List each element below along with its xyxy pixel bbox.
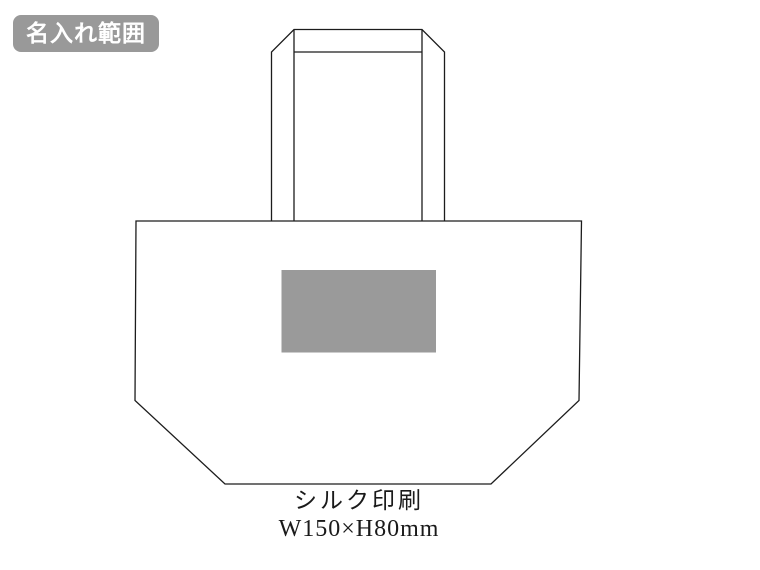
print-method-text: シルク印刷	[279, 486, 440, 515]
print-spec-caption: シルク印刷 W150×H80mm	[279, 486, 440, 544]
print-range-diagram-page: 名入れ範囲 シルク印刷 W150×H80mm	[0, 0, 760, 570]
tote-bag-diagram	[0, 0, 760, 570]
print-area-rect	[282, 270, 437, 353]
bag-handle-outline	[272, 30, 445, 222]
bag-line-art	[135, 30, 582, 485]
print-size-text: W150×H80mm	[279, 515, 440, 544]
